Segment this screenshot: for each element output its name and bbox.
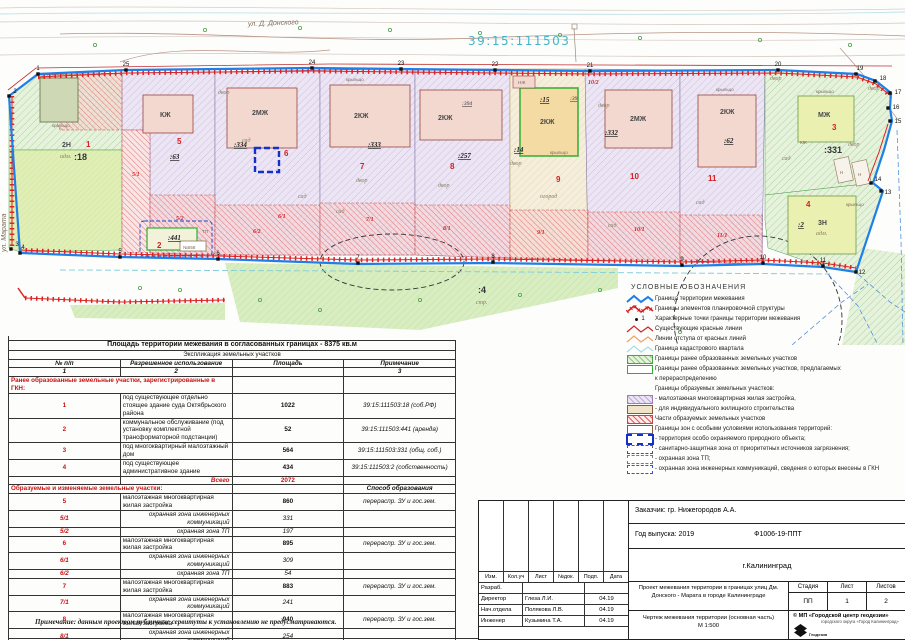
legend-swatch-blue-dash xyxy=(625,465,655,474)
map-label: :441 xyxy=(168,234,181,242)
signature-name: Кузьмина Т.А. xyxy=(523,616,585,626)
table-cell xyxy=(344,476,456,485)
column-number xyxy=(232,368,344,377)
map-label: Н xyxy=(840,170,843,175)
map-label: двор xyxy=(218,89,230,96)
legend-item-label: Характерные точки границы территории меж… xyxy=(655,316,800,322)
map-label: 5 xyxy=(177,137,182,146)
table-title: Площадь территории межевания в согласова… xyxy=(9,341,456,351)
boundary-point-marker xyxy=(879,189,882,192)
legend-item: Линии отступа от красных линий xyxy=(625,334,903,344)
legend-swatch-zz-blue xyxy=(625,294,655,304)
legend-item-label: - санитарно-защитная зона от приоритетны… xyxy=(655,446,850,452)
boundary-point-number: 14 xyxy=(875,177,882,183)
map-label: 10/1 xyxy=(634,227,645,233)
column-header: Площадь xyxy=(232,359,344,368)
stage-table: СтадияЛистЛистов ПП12 xyxy=(789,582,905,610)
map-label: сад xyxy=(696,199,705,206)
legend-swatch-zz-cyan xyxy=(625,344,655,354)
map-label: двор xyxy=(598,102,610,109)
legend-item-label: Граница территории межевания xyxy=(655,296,745,302)
row-note: перераспр. ЗУ и гос.зем. xyxy=(344,612,456,629)
map-label: :394 xyxy=(462,100,472,107)
legend-swatch-zz-red xyxy=(625,324,655,334)
table-cell xyxy=(9,476,121,485)
legend-item: 1Характерные точки границы территории ме… xyxy=(625,314,903,324)
row-use: малоэтажная многоквартирная жилая застро… xyxy=(120,536,232,553)
legend-item: Граница территории межевания xyxy=(625,294,903,304)
legend-swatch-point: 1 xyxy=(625,316,655,322)
signature-row: ИнженерКузьмина Т.А.04.19 xyxy=(479,616,628,627)
signature-date: 04.19 xyxy=(585,616,628,626)
boundary-point-marker xyxy=(216,257,219,260)
boundary-point-marker xyxy=(399,67,402,70)
map-label: крыльцо xyxy=(346,77,364,82)
legend-item-label: Линии отступа от красных линий xyxy=(655,336,746,342)
boundary-point-number: 10 xyxy=(760,255,767,261)
legend-item: - для индивидуального жилищного строител… xyxy=(625,404,903,414)
map-label: 9/1 xyxy=(537,230,545,236)
legend-swatch-gray-dashdot xyxy=(625,445,655,454)
map-label: 10/2 xyxy=(588,80,599,86)
column-number: 1 xyxy=(9,368,121,377)
row-note: перераспр. ЗУ и гос.зем. xyxy=(344,578,456,595)
row-number: 6 xyxy=(9,536,121,553)
section-header: Ранее образованные земельные участки, за… xyxy=(9,377,233,394)
map-label: двор xyxy=(770,75,782,82)
legend-item-label: Части образуемых земельных участков xyxy=(655,416,765,422)
map-label: двор xyxy=(438,182,450,189)
empty-grid xyxy=(479,501,628,572)
row-note xyxy=(344,569,456,578)
legend-item: Граница кадастрового квартала xyxy=(625,344,903,354)
signature-role: Директор xyxy=(479,594,523,604)
legend-item: Границы зон с особыми условиями использо… xyxy=(625,424,903,434)
total-value: 2072 xyxy=(232,476,344,485)
drawing-name: Чертеж межевания территории (основная ча… xyxy=(643,615,774,621)
title-block-signatures: Изм.Кол.учЛист№док.Подп.Дата Разраб.Дире… xyxy=(479,501,629,639)
boundary-point-number: 16 xyxy=(893,105,900,111)
map-label: 2КЖ xyxy=(438,115,453,122)
map-label: 39:15:111503 xyxy=(468,34,570,48)
signature-role: Инженер xyxy=(479,616,523,626)
map-label: :14 xyxy=(514,146,524,154)
org-logo: Геодезия xyxy=(794,624,827,637)
map-label: адм. xyxy=(816,230,827,237)
row-area: 52 xyxy=(232,418,344,443)
table-subtitle: Экспликация земельных участков xyxy=(9,350,456,359)
boundary-point-number: 20 xyxy=(775,62,782,68)
signature-role: Разраб. xyxy=(479,583,523,593)
total-label: Всего xyxy=(120,476,232,485)
boundary-point-marker xyxy=(356,261,359,264)
row-area: 309 xyxy=(232,553,344,570)
map-label: ТП xyxy=(202,229,208,234)
legend-item-label: Границы образуемых земельных участков: xyxy=(655,386,774,392)
stage-header: Стадия xyxy=(789,582,828,592)
boundary-point-number: 11 xyxy=(820,258,827,264)
row-number: 3 xyxy=(9,443,121,460)
legend-item: Границы ранее образованных земельных уча… xyxy=(625,364,903,374)
map-label: 11 xyxy=(708,174,717,183)
drawing-scale: М 1:500 xyxy=(698,623,719,629)
signature-col-header: №док. xyxy=(554,572,579,582)
boundary-point-marker xyxy=(588,69,591,72)
legend-item-label: - охранная зона ТП; xyxy=(655,456,710,462)
sheet-frame-left xyxy=(8,336,9,638)
legend-swatch-blue-dash-thick xyxy=(625,434,655,445)
row-note: 39:15:111503:441 (аренда) xyxy=(344,418,456,443)
legend-swatch-brown-outline xyxy=(625,425,655,434)
note: Примечание: данным проектом публичные се… xyxy=(35,618,336,626)
legend-item: Границы ранее образованных земельных уча… xyxy=(625,354,903,364)
map-label: сад xyxy=(336,208,345,215)
legend-item-label: - для индивидуального жилищного строител… xyxy=(655,406,794,412)
map-label: :2 xyxy=(798,221,804,229)
row-area: 241 xyxy=(232,595,344,612)
map-label: адм. xyxy=(60,153,71,160)
map-label: сад xyxy=(298,193,307,200)
legend-swatch-purple-hatch xyxy=(625,395,655,404)
map-label: 8/1 xyxy=(443,226,451,232)
row-area: 895 xyxy=(232,536,344,553)
column-number: 2 xyxy=(120,368,232,377)
legend-swatch-zz-orange xyxy=(625,334,655,344)
boundary-point-marker xyxy=(854,72,857,75)
boundary-point-marker xyxy=(761,261,764,264)
row-use: охранная зона инженерных коммуникаций xyxy=(120,595,232,612)
row-use: малоэтажная многоквартирная жилая застро… xyxy=(120,578,232,595)
project-title: Проект межевания территории в границах у… xyxy=(629,582,789,610)
row-area: 1022 xyxy=(232,393,344,418)
city-row: г.Калининград xyxy=(629,549,905,582)
map-label: сад xyxy=(242,137,251,144)
signature-row: Нач.отделаПолякова Л.В.04.19 xyxy=(479,605,628,616)
row-number: 2 xyxy=(9,418,121,443)
map-label: 2КЖ xyxy=(720,109,735,116)
legend-item: - охранная зона инженерных коммуникаций,… xyxy=(625,464,903,474)
map-label: 2КЖ xyxy=(540,119,555,126)
stage-value: 2 xyxy=(867,593,905,610)
legend-item-label: Граница кадастрового квартала xyxy=(655,346,744,352)
legend-item: - охранная зона ТП; xyxy=(625,454,903,464)
legend-item-label: - охранная зона инженерных коммуникаций,… xyxy=(655,466,879,472)
boundary-point-number: 17 xyxy=(895,90,902,96)
map-label: огород xyxy=(540,193,557,200)
map-label: :4 xyxy=(478,285,486,295)
row-use: под существующее административное здание xyxy=(120,459,232,476)
row-number: 7/1 xyxy=(9,595,121,612)
section-header: Образуемые и изменяемые земельные участк… xyxy=(9,485,233,494)
legend-swatch-gray-dash xyxy=(625,455,655,464)
legend-item-label: Границы ранее образованных земельных уча… xyxy=(655,366,841,372)
legend-item-label: Границы ранее образованных земельных уча… xyxy=(655,356,797,362)
legend-swatch-tan xyxy=(625,405,655,414)
legend-swatch-red-hatch xyxy=(625,415,655,424)
signature-col-header: Подп. xyxy=(579,572,604,582)
row-note: перераспр. ЗУ и гос.зем. xyxy=(344,494,456,511)
signature-date: 04.19 xyxy=(585,605,628,615)
boundary-point-number: 25 xyxy=(123,62,130,68)
map-label: 7/1 xyxy=(366,217,374,223)
map-label: :18 xyxy=(74,152,87,162)
boundary-point-marker xyxy=(776,68,779,71)
map-label: крыльцо xyxy=(816,89,834,94)
signature-date: 04.19 xyxy=(585,594,628,604)
signature-name xyxy=(523,583,585,593)
map-label: сад xyxy=(608,222,617,229)
boundary-point-marker xyxy=(491,260,494,263)
method-header: Способ образования xyxy=(344,485,456,494)
table-cell xyxy=(232,485,344,494)
organization: © МП «Городской центр геодезии» городско… xyxy=(789,611,905,639)
legend-item: - санитарно-защитная зона от приоритетны… xyxy=(625,444,903,454)
geodesy-logo-icon xyxy=(794,624,807,637)
map-label: 2Н xyxy=(62,142,71,149)
row-number: 1 xyxy=(9,393,121,418)
boundary-point-marker xyxy=(854,270,857,273)
year-label: Год выпуска: 2019 xyxy=(635,531,694,548)
map-label: 6/1 xyxy=(278,214,286,220)
row-note xyxy=(344,510,456,527)
row-use: охранная зона ТП xyxy=(120,569,232,578)
boundary-point-marker xyxy=(888,119,891,122)
legend-item: Существующие красные линии xyxy=(625,324,903,334)
title-block: Изм.Кол.учЛист№док.Подп.Дата Разраб.Дире… xyxy=(478,500,905,640)
map-label: :332 xyxy=(605,129,618,137)
legend-swatch-green-hatch xyxy=(625,355,655,364)
map-label: ул. Д. Донского xyxy=(247,19,299,28)
map-label: сад xyxy=(782,155,791,162)
map-label: :333 xyxy=(368,141,381,149)
signature-col-header: Лист xyxy=(529,572,554,582)
row-area: 434 xyxy=(232,459,344,476)
map-label: МЖ xyxy=(818,112,831,119)
boundary-point-number: 21 xyxy=(587,63,594,69)
table-cell xyxy=(232,377,344,394)
map-label: ул. Марата xyxy=(1,213,8,253)
map-label: 6/2 xyxy=(253,229,261,235)
signature-name: Глеза Л.И. xyxy=(523,594,585,604)
legend-item: - малоэтажная многоквартирная жилая заст… xyxy=(625,394,903,404)
table-cell xyxy=(344,377,456,394)
signature-name: Полякова Л.В. xyxy=(523,605,585,615)
row-area: 860 xyxy=(232,494,344,511)
boundary-point-marker xyxy=(493,68,496,71)
map-label: :63 xyxy=(170,153,180,161)
row-note xyxy=(344,553,456,570)
boundary-point-marker xyxy=(7,94,10,97)
map-label: 2МЖ xyxy=(252,110,269,117)
map-label: 2МЖ xyxy=(630,116,647,123)
legend-item-label: Границы зон с особыми условиями использо… xyxy=(655,426,832,432)
signature-date xyxy=(585,583,628,593)
map-label: №558 xyxy=(183,245,196,250)
map-label: крыльцо xyxy=(52,123,70,128)
row-use: под существующее отдельно стоящее здание… xyxy=(120,393,232,418)
stage-value: ПП xyxy=(789,593,828,610)
signature-columns: Изм.Кол.учЛист№док.Подп.Дата xyxy=(479,572,628,583)
row-area: 54 xyxy=(232,569,344,578)
row-number: 7 xyxy=(9,578,121,595)
map-label: КЖ xyxy=(160,112,171,119)
drawing-sheet: 1234567891011121314151617181920212223242… xyxy=(0,0,905,640)
boundary-point-marker xyxy=(310,66,313,69)
area-table: Площадь территории межевания в согласова… xyxy=(8,340,456,640)
row-number: 6/1 xyxy=(9,553,121,570)
map-label: двор xyxy=(510,160,522,167)
document-code: Ф1006-19-ППТ xyxy=(754,531,802,548)
row-area: 331 xyxy=(232,510,344,527)
column-header: Примечание xyxy=(344,359,456,368)
drawing-title: Чертеж межевания территории (основная ча… xyxy=(629,611,789,639)
map-label: 4 xyxy=(806,200,811,209)
row-use: коммунальное обслуживание (под установку… xyxy=(120,418,232,443)
boundary-point-marker xyxy=(124,68,127,71)
boundary-point-number: 22 xyxy=(492,62,499,68)
boundary-point-marker xyxy=(886,106,889,109)
legend-swatch-green-outline xyxy=(625,365,655,374)
boundary-point-number: 18 xyxy=(880,76,887,82)
map-label: 6 xyxy=(284,149,289,158)
boundary-point-number: 13 xyxy=(885,190,892,196)
row-note xyxy=(344,527,456,536)
legend-item-label: - территория особо охраняемого природног… xyxy=(655,436,806,442)
column-header: № п/п xyxy=(9,359,121,368)
map-label: 2КЖ xyxy=(354,113,369,120)
row-number: 4 xyxy=(9,459,121,476)
map-label: 2 xyxy=(157,241,162,250)
row-note: 39:15:111503:331 (общ. соб.) xyxy=(344,443,456,460)
map-label: 7 xyxy=(360,162,365,171)
org-sub: городского округа «Город Калининград» xyxy=(821,619,903,624)
signature-col-header: Кол.уч xyxy=(504,572,529,582)
row-use: охранная зона инженерных коммуникаций xyxy=(120,510,232,527)
boundary-point-marker xyxy=(118,255,121,258)
map-label: 1 xyxy=(86,140,91,149)
map-label: НЖ xyxy=(518,80,526,85)
row-note: 39:15:111503:18 (соб.РФ) xyxy=(344,393,456,418)
legend-item-label: Границы элементов планировочной структур… xyxy=(655,306,785,312)
boundary-point-marker xyxy=(680,263,683,266)
legend-title: УСЛОВНЫЕ ОБОЗНАЧЕНИЯ xyxy=(631,284,903,291)
stage-header: Лист xyxy=(828,582,867,592)
map-label: 3 xyxy=(832,123,837,132)
boundary-point-marker xyxy=(869,181,872,184)
map-label: :62 xyxy=(724,137,734,145)
map-label: двор xyxy=(868,85,880,92)
map-label: КЖ xyxy=(800,140,808,145)
map-label: 8 xyxy=(450,162,455,171)
legend-item: Части образуемых земельных участков xyxy=(625,414,903,424)
legend-item-label: к перераспределению xyxy=(655,376,717,382)
map-label: двор xyxy=(848,141,860,148)
map-label: 10 xyxy=(630,172,639,181)
column-header: Разрешенное использование xyxy=(120,359,232,368)
signature-row: ДиректорГлеза Л.И.04.19 xyxy=(479,594,628,605)
signature-col-header: Дата xyxy=(604,572,628,582)
row-number: 6/2 xyxy=(9,569,121,578)
legend-item: Границы элементов планировочной структур… xyxy=(625,304,903,314)
title-block-info: Заказчик: гр. Нижегородов А.А. Год выпус… xyxy=(629,501,905,639)
stage-header: Листов xyxy=(867,582,905,592)
map-label: 5/1 xyxy=(132,172,140,178)
boundary-point-marker xyxy=(821,264,824,267)
map-label: крыльцо xyxy=(550,150,568,155)
row-use: под многоквартирный малоэтажный дом xyxy=(120,443,232,460)
boundary-point-marker xyxy=(36,72,39,75)
map-label: стр. xyxy=(476,300,488,306)
stage-value: 1 xyxy=(828,593,867,610)
client-row: Заказчик: гр. Нижегородов А.А. xyxy=(629,501,905,524)
map-label: 11/1 xyxy=(717,233,727,239)
logo-text: Геодезия xyxy=(809,632,827,637)
boundary-point-number: 19 xyxy=(857,66,864,72)
boundary-point-marker xyxy=(18,251,21,254)
signature-col-header: Изм. xyxy=(479,572,504,582)
boundary-point-number: 23 xyxy=(398,61,405,67)
map-label: двор xyxy=(356,177,368,184)
row-use: охранная зона ТП xyxy=(120,527,232,536)
map-label: :39 xyxy=(570,96,578,102)
row-note xyxy=(344,595,456,612)
boundary-point-number: 1 xyxy=(36,66,40,72)
row-note: перераспр. ЗУ и гос.зем. xyxy=(344,536,456,553)
legend-swatch-zz-red-ticks xyxy=(625,304,655,314)
map-label: 5/2 xyxy=(176,216,184,222)
legend-item: - территория особо охраняемого природног… xyxy=(625,434,903,444)
boundary-point-marker xyxy=(873,79,876,82)
year-row: Год выпуска: 2019 Ф1006-19-ППТ xyxy=(629,524,905,549)
map-label: :15 xyxy=(540,96,550,104)
row-area: 883 xyxy=(232,578,344,595)
map-label: Н xyxy=(858,172,861,177)
boundary-point-number: 15 xyxy=(895,119,902,125)
boundary-point-number: 24 xyxy=(309,60,316,66)
signature-row: Разраб. xyxy=(479,583,628,594)
row-number: 5/1 xyxy=(9,510,121,527)
row-note: 39:15:111503:2 (собственность) xyxy=(344,459,456,476)
boundary-point-marker xyxy=(888,91,891,94)
map-label: 3Н xyxy=(818,220,827,227)
row-use: охранная зона инженерных коммуникаций xyxy=(120,553,232,570)
legend-item-label: Существующие красные линии xyxy=(655,326,742,332)
map-label: крыльцо xyxy=(846,202,864,207)
row-use: малоэтажная многоквартирная жилая застро… xyxy=(120,494,232,511)
map-label: :331 xyxy=(824,145,842,155)
boundary-point-marker xyxy=(9,247,12,250)
legend: УСЛОВНЫЕ ОБОЗНАЧЕНИЯ Граница территории … xyxy=(625,284,903,474)
legend-item-label: - малоэтажная многоквартирная жилая заст… xyxy=(655,396,796,402)
map-label: 9 xyxy=(556,175,561,184)
boundary-point-number: 12 xyxy=(859,270,866,276)
signature-role: Нач.отдела xyxy=(479,605,523,615)
map-label: крыльцо xyxy=(716,87,734,92)
legend-item: к перераспределению xyxy=(625,374,903,384)
row-area: 197 xyxy=(232,527,344,536)
row-number: 5/2 xyxy=(9,527,121,536)
row-number: 5 xyxy=(9,494,121,511)
map-label: :257 xyxy=(458,152,471,160)
legend-item: Границы образуемых земельных участков: xyxy=(625,384,903,394)
column-number: 3 xyxy=(344,368,456,377)
row-area: 564 xyxy=(232,443,344,460)
